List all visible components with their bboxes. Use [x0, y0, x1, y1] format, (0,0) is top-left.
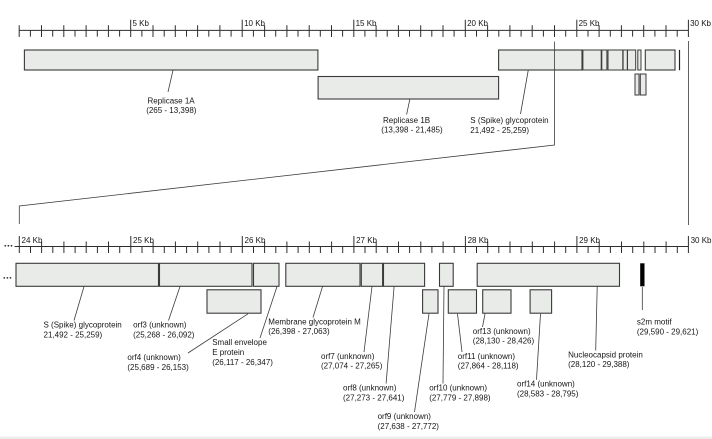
svg-text:orf10 (unknown): orf10 (unknown) [429, 384, 487, 393]
svg-text:Nucleocapsid protein: Nucleocapsid protein [568, 350, 643, 359]
svg-text:Replicase 1A: Replicase 1A [148, 96, 196, 105]
svg-text:30 Kb: 30 Kb [691, 236, 712, 245]
svg-text:21,492 - 25,259): 21,492 - 25,259) [470, 126, 529, 135]
svg-text:(26,398 - 27,063): (26,398 - 27,063) [268, 327, 330, 336]
svg-text:29 Kb: 29 Kb [579, 236, 600, 245]
svg-text:Membrane glycoprotein M: Membrane glycoprotein M [268, 317, 361, 326]
svg-text:27 Kb: 27 Kb [356, 236, 377, 245]
svg-text:10 Kb: 10 Kb [244, 19, 265, 28]
svg-text:orf8 (unknown): orf8 (unknown) [343, 384, 397, 393]
svg-text:orf3 (unknown): orf3 (unknown) [133, 321, 187, 330]
svg-text:25 Kb: 25 Kb [133, 236, 154, 245]
svg-text:(27,074 - 27,265): (27,074 - 27,265) [321, 362, 383, 371]
svg-text:(27,864 - 28,118): (27,864 - 28,118) [458, 362, 519, 371]
svg-text:orf7 (unknown): orf7 (unknown) [321, 352, 375, 361]
svg-text:(28,120 - 29,388): (28,120 - 29,388) [568, 360, 630, 369]
svg-text:(27,638 - 27,772): (27,638 - 27,772) [378, 422, 440, 431]
svg-text:E protein: E protein [212, 348, 244, 357]
svg-text:20 Kb: 20 Kb [467, 19, 488, 28]
svg-text:15 Kb: 15 Kb [356, 19, 377, 28]
svg-text:s2m motif: s2m motif [637, 318, 672, 327]
svg-text:(265 - 13,398): (265 - 13,398) [146, 106, 197, 115]
svg-text:Small envelope: Small envelope [212, 338, 267, 347]
svg-text:(25,268 - 26,092): (25,268 - 26,092) [133, 331, 195, 340]
svg-text:25 Kb: 25 Kb [579, 19, 600, 28]
svg-text:24 Kb: 24 Kb [22, 236, 43, 245]
svg-text:(29,590 - 29,621): (29,590 - 29,621) [637, 327, 699, 336]
svg-text:orf11 (unknown): orf11 (unknown) [458, 352, 516, 361]
svg-text:(28,130 - 28,426): (28,130 - 28,426) [473, 337, 535, 346]
svg-text:(27,779 - 27,898): (27,779 - 27,898) [429, 393, 491, 402]
svg-text:5 Kb: 5 Kb [133, 19, 150, 28]
svg-text:30 Kb: 30 Kb [690, 19, 711, 28]
svg-text:orf13 (unknown): orf13 (unknown) [473, 327, 531, 336]
svg-text:Replicase 1B: Replicase 1B [383, 116, 430, 125]
svg-text:(27,273 - 27,641): (27,273 - 27,641) [343, 393, 405, 402]
svg-text:26 Kb: 26 Kb [245, 236, 266, 245]
svg-text:orf9 (unknown): orf9 (unknown) [378, 412, 432, 421]
svg-text:21,492 - 25,259): 21,492 - 25,259) [44, 331, 103, 340]
svg-text:(13,398 - 21,485): (13,398 - 21,485) [381, 126, 443, 135]
svg-text:S (Spike) glycoprotein: S (Spike) glycoprotein [470, 116, 548, 125]
svg-text:28 Kb: 28 Kb [468, 236, 489, 245]
svg-text:orf14 (unknown): orf14 (unknown) [517, 380, 575, 389]
svg-text:orf4 (unknown): orf4 (unknown) [127, 353, 181, 362]
svg-text:(25,689 - 26,153): (25,689 - 26,153) [127, 363, 189, 372]
svg-text:(28,583 - 28,795): (28,583 - 28,795) [517, 389, 579, 398]
svg-text:S (Spike) glycoprotein: S (Spike) glycoprotein [44, 321, 122, 330]
svg-text:(26,117 - 26,347): (26,117 - 26,347) [212, 358, 273, 367]
